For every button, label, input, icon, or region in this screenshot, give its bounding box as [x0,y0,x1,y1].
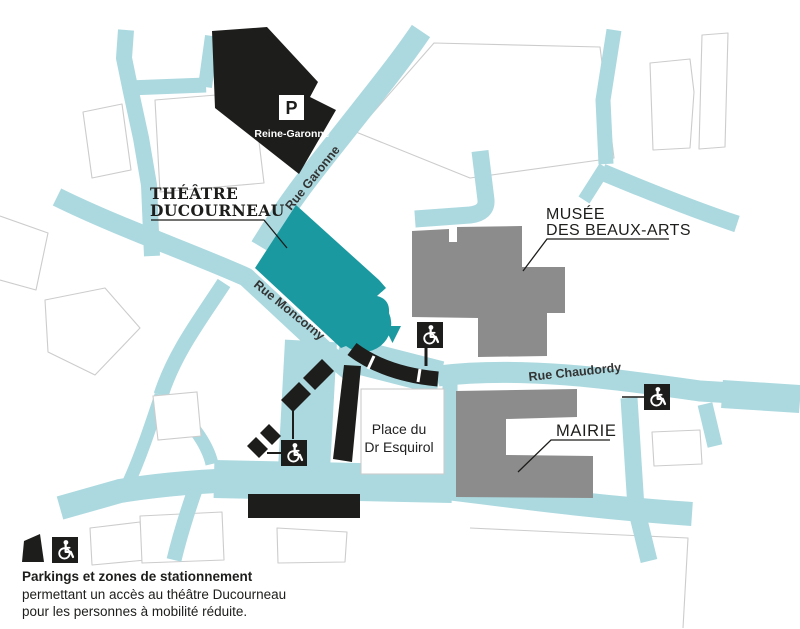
parking-p-icon: P [279,95,304,120]
wheelchair-icon [417,322,443,348]
wheelchair-icon [281,440,307,466]
musee-label-line2: DES BEAUX-ARTS [546,222,691,239]
building-outline [277,528,347,563]
street-chaudordy-south-stub [705,404,715,446]
legend-line3: pour les personnes à mobilité réduite. [22,604,247,619]
street-top-left-branch [128,85,206,88]
theatre-label-line2: DUCOURNEAU [150,201,285,220]
legend-line2: permettant un accès au théâtre Ducournea… [22,587,286,602]
parking-name-label: Reine-Garonne [254,128,329,140]
parking-band-divider [418,369,420,382]
city-map: P Reine-Garonne THÉÂTRE DUCOURNEAU MUSÉE… [0,0,800,629]
building-outline [652,430,702,466]
building-outline [650,59,694,150]
parking-p-letter: P [285,98,297,118]
wheelchair-icon [644,384,670,410]
wheelchair-icon [52,537,78,563]
place-label-line1: Place du [372,421,426,437]
musee-label-line1: MUSÉE [546,204,605,223]
parking-strip-diagonal [266,430,275,439]
parking-strip-south [248,494,360,518]
building-outline [83,104,131,178]
street-top-left-stub [205,36,212,87]
building-outline [699,33,728,149]
mairie-label: MAIRIE [556,422,616,440]
legend-title: Parkings et zones de stationnement [22,569,253,584]
street-chaudordy-wide-east [722,394,800,399]
map-canvas: P Reine-Garonne THÉÂTRE DUCOURNEAU MUSÉE… [0,0,800,629]
parking-strip-diagonal [253,443,262,452]
small-island-block [153,392,201,440]
plaza-roadway-horizontal [214,479,452,484]
building-outline [90,522,146,565]
place-label-line2: Dr Esquirol [364,439,433,455]
